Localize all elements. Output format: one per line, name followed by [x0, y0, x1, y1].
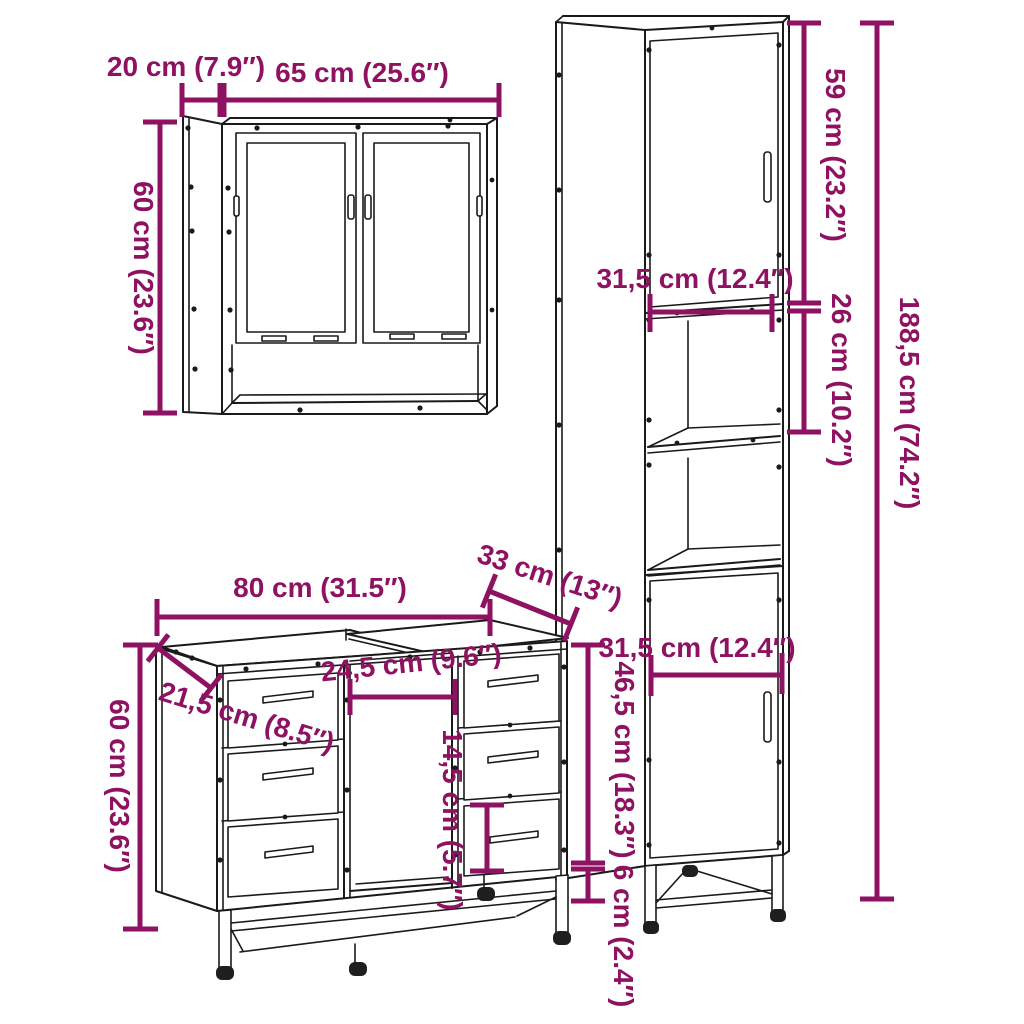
- mirror-door-hinge: [477, 196, 482, 216]
- dim-mirror-width-line: [224, 83, 499, 117]
- dim-label-vanity-drawer: 14,5 cm (5.7″): [437, 729, 468, 911]
- tall-cabinet-drawing: [556, 16, 789, 933]
- dim-label-mirror-height: 60 cm (23.6″): [128, 181, 159, 355]
- mirror-glass: [247, 143, 345, 332]
- diagram-canvas: 20 cm (7.9″) 65 cm (25.6″) 60 cm (23.6″)…: [0, 0, 1024, 1024]
- tall-lower-door: [650, 573, 778, 858]
- dim-label-vanity-height: 60 cm (23.6″): [104, 699, 135, 873]
- dim-label-mirror-width: 65 cm (25.6″): [275, 57, 449, 88]
- tall-upper-door-handle: [764, 152, 771, 202]
- dim-label-tall-clearance: 6 cm (2.4″): [608, 865, 639, 1008]
- tall-lower-door-handle: [764, 692, 771, 742]
- dim-label-tall-upper-door: 59 cm (23.2″): [820, 68, 851, 242]
- mirror-door-left: [234, 133, 356, 343]
- mirror-door-handle: [365, 195, 371, 219]
- dim-label-tall-width-lower: 31,5 cm (12.4″): [598, 632, 795, 663]
- mirror-glass: [374, 143, 469, 332]
- dim-mirror-depth-line: [182, 83, 220, 117]
- mirror-door-right: [363, 133, 482, 343]
- tall-base-frame: [644, 855, 785, 933]
- mirror-door-hinge: [234, 196, 239, 216]
- dim-tall-upper-door-line: [787, 23, 821, 303]
- vanity-right-drawers: [458, 654, 561, 876]
- dim-tall-total-height-line: [860, 23, 894, 899]
- dim-label-tall-width-upper: 31,5 cm (12.4″): [596, 263, 793, 294]
- mirror-door-handle: [348, 195, 354, 219]
- dim-tall-open-shelf-line: [787, 311, 821, 432]
- dim-label-vanity-width: 80 cm (31.5″): [233, 572, 407, 603]
- dim-label-tall-open-shelf: 26 cm (10.2″): [826, 293, 857, 467]
- vanity-drawer: [464, 727, 559, 800]
- dim-label-tall-lower-door: 46,5 cm (18.3″): [609, 661, 640, 858]
- vanity-drawer: [228, 819, 338, 897]
- dimension-diagram: 20 cm (7.9″) 65 cm (25.6″) 60 cm (23.6″)…: [0, 0, 1024, 1024]
- dim-label-mirror-depth: 20 cm (7.9″): [107, 51, 265, 82]
- dim-label-tall-total-height: 188,5 cm (74.2″): [894, 297, 925, 510]
- vanity-drawer: [228, 746, 338, 821]
